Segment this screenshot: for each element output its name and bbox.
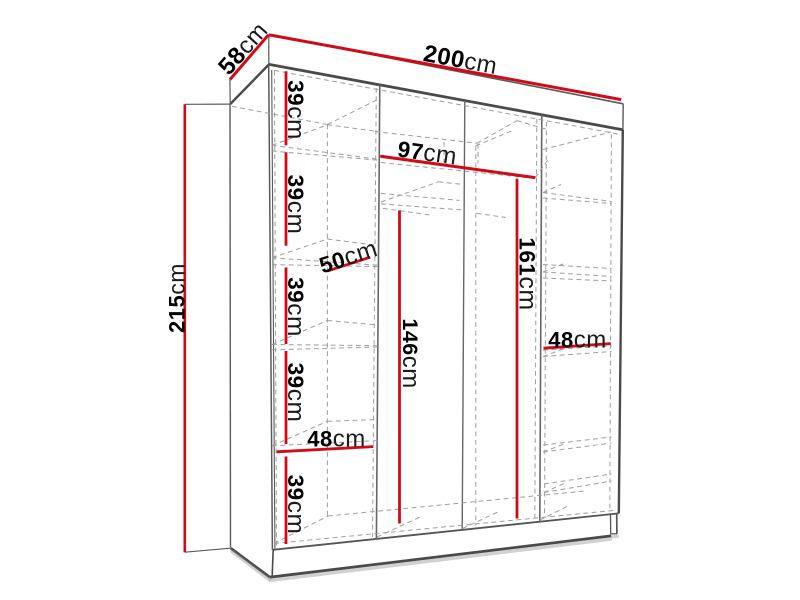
svg-text:39cm: 39cm	[282, 363, 309, 423]
svg-text:215cm: 215cm	[164, 263, 190, 333]
svg-text:39cm: 39cm	[282, 80, 309, 140]
svg-text:161cm: 161cm	[514, 237, 542, 310]
svg-text:146cm: 146cm	[397, 318, 424, 388]
svg-text:39cm: 39cm	[282, 475, 309, 535]
svg-text:39cm: 39cm	[282, 175, 309, 235]
svg-text:48cm: 48cm	[548, 327, 606, 354]
svg-text:39cm: 39cm	[282, 277, 309, 337]
svg-text:48cm: 48cm	[307, 426, 365, 453]
